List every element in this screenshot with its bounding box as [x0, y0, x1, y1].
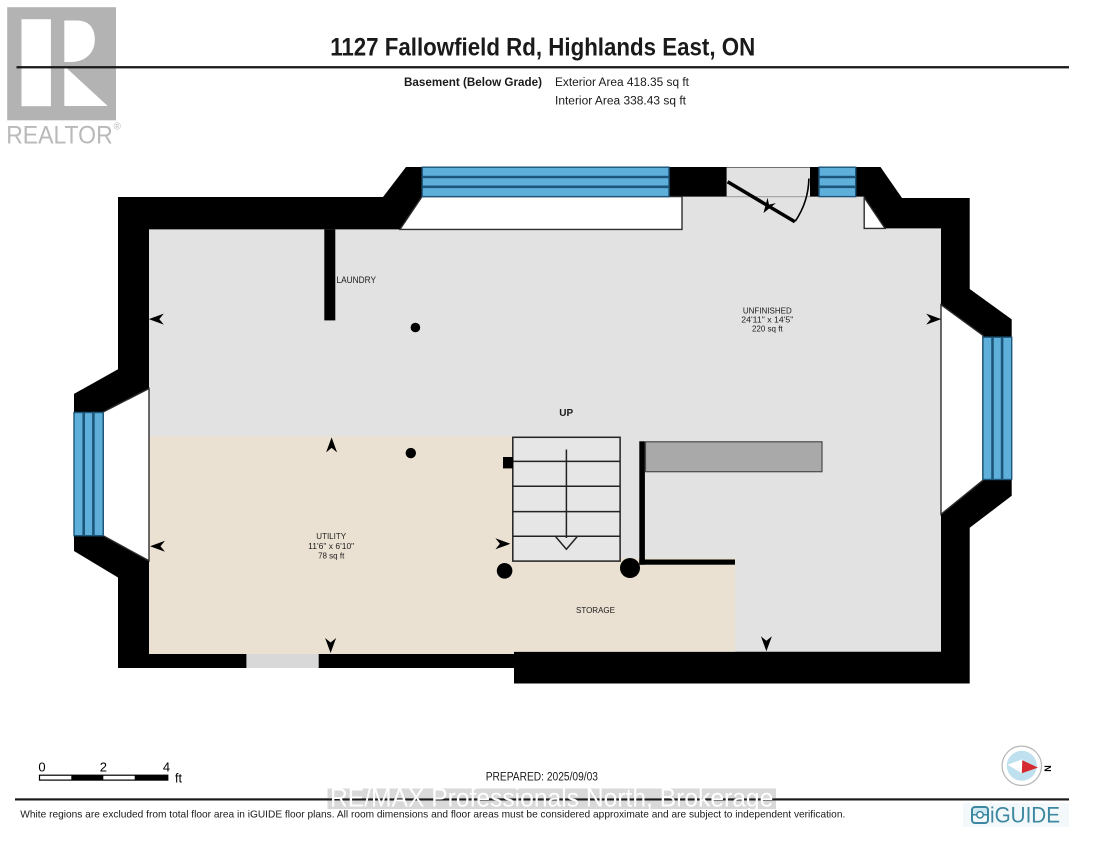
svg-text:STORAGE: STORAGE	[576, 606, 615, 615]
svg-text:2: 2	[100, 759, 107, 774]
svg-text:Interior Area 338.43 sq ft: Interior Area 338.43 sq ft	[555, 96, 687, 108]
svg-text:®: ®	[114, 122, 122, 133]
svg-text:UP: UP	[559, 408, 573, 419]
svg-text:24'11" x 14'5": 24'11" x 14'5"	[741, 316, 793, 325]
svg-text:Basement (Below Grade): Basement (Below Grade)	[404, 77, 542, 89]
svg-text:4: 4	[163, 759, 170, 774]
svg-text:iGUIDE: iGUIDE	[990, 803, 1060, 828]
svg-text:220 sq ft: 220 sq ft	[752, 325, 783, 334]
svg-text:REALTOR: REALTOR	[6, 121, 113, 149]
svg-text:UNFINISHED: UNFINISHED	[743, 307, 792, 316]
svg-text:0: 0	[38, 759, 45, 774]
svg-text:UTILITY: UTILITY	[316, 532, 346, 541]
svg-text:1127 Fallowfield Rd, Highlands: 1127 Fallowfield Rd, Highlands East, ON	[330, 34, 755, 62]
svg-text:ft: ft	[175, 771, 182, 785]
svg-text:11'6" x 6'10": 11'6" x 6'10"	[308, 542, 354, 551]
svg-text:N: N	[1043, 765, 1053, 772]
svg-text:LAUNDRY: LAUNDRY	[337, 275, 377, 285]
svg-text:78 sq ft: 78 sq ft	[318, 552, 345, 561]
svg-text:White regions are excluded fro: White regions are excluded from total fl…	[20, 808, 845, 820]
svg-text:Exterior Area 418.35 sq ft: Exterior Area 418.35 sq ft	[555, 77, 690, 89]
